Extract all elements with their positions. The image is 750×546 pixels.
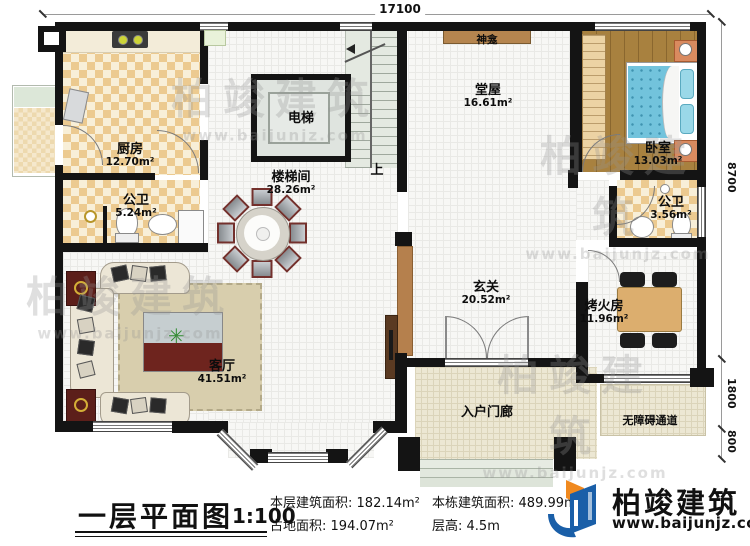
wall: [528, 358, 576, 367]
room-name: 厨房: [106, 143, 155, 157]
porch-column: [554, 437, 576, 471]
room-label-kitchen: 厨房 12.70m²: [106, 143, 155, 169]
plant: ✳: [168, 326, 185, 346]
cushion: [149, 265, 166, 282]
tv-wall-cap: [395, 232, 412, 246]
stove-burner: [118, 35, 128, 45]
wall: [228, 22, 340, 31]
room-label-ramp: 无障碍通道: [623, 410, 678, 428]
pillow: [680, 104, 694, 134]
dining-chair: [217, 223, 235, 244]
porch-step: [420, 477, 553, 487]
room-label-shrine: 神龛: [477, 29, 498, 47]
table-lamp: [679, 43, 692, 56]
dimension-line-right: [721, 22, 722, 460]
title-underline: [75, 536, 267, 537]
stat-value: 4.5m: [467, 519, 500, 534]
dimension-top-value: 17100: [375, 2, 425, 16]
bed-sheet: [662, 66, 679, 138]
brand-url: www.baijunjz.com: [612, 514, 750, 532]
bath2-corridor-floor: [576, 180, 609, 240]
dim-text: 800: [725, 430, 738, 453]
chair: [620, 333, 645, 348]
shower-head: [660, 184, 670, 194]
entry-door-left-leaf: [445, 316, 447, 358]
room-name: 公卫: [115, 194, 156, 208]
dining-chair: [289, 223, 307, 244]
stat-label: 本层建筑面积:: [270, 496, 352, 511]
tv-wall: [397, 246, 413, 356]
wall: [395, 353, 407, 433]
floor-lamp: [84, 210, 97, 223]
room-label-kaohuofang: 烤火房 11.96m²: [580, 300, 629, 326]
chimney-flue: [44, 32, 59, 45]
room-label-bath1: 公卫 5.24m²: [115, 194, 156, 220]
washing-machine: [178, 210, 204, 244]
room-area: 11.96m²: [580, 314, 629, 326]
cushion: [77, 339, 95, 356]
stat-storey-height: 层高: 4.5m: [432, 515, 500, 534]
wall: [63, 173, 155, 180]
cabinet-emblem: [74, 281, 88, 295]
room-area: 12.70m²: [106, 157, 155, 169]
terrace-top: [14, 87, 56, 107]
bay-window-center: [268, 452, 328, 463]
wall: [568, 170, 578, 188]
pillow: [680, 69, 694, 99]
room-area: 3.56m²: [650, 210, 691, 222]
title-text: 一层平面图: [78, 500, 233, 533]
bath1-partition: [103, 206, 107, 244]
dimension-right-8700: 8700: [725, 162, 738, 193]
cushion: [130, 397, 148, 414]
room-area: 5.24m²: [115, 208, 156, 220]
wall: [55, 421, 93, 432]
stat-footprint: 占地面积: 194.07m²: [270, 515, 394, 534]
room-name: 神龛: [477, 34, 498, 46]
stat-value: 182.14m²: [357, 496, 420, 511]
wall: [697, 237, 706, 383]
wall: [609, 238, 706, 247]
stove-burner: [133, 35, 143, 45]
stair-arrow: [346, 44, 355, 54]
wall: [570, 22, 582, 172]
room-name: 楼梯间: [267, 171, 316, 185]
wall: [55, 165, 63, 422]
cabinet-emblem: [74, 398, 88, 412]
cushion: [130, 265, 148, 282]
room-name: 公卫: [650, 196, 691, 210]
kitchen-vent: [204, 30, 226, 46]
room-label-xuanguan: 玄关 20.52m²: [462, 281, 511, 307]
brand-url-text: www.baijunjz.com: [612, 514, 750, 532]
stat-label: 占地面积:: [270, 519, 326, 534]
window: [340, 22, 372, 31]
room-area: 20.52m²: [462, 295, 511, 307]
room-name: 烤火房: [580, 300, 629, 314]
stat-label: 本栋建筑面积:: [432, 496, 514, 511]
window: [93, 421, 172, 432]
window: [595, 22, 690, 31]
room-label-elevator: 电梯: [288, 112, 314, 126]
chair: [652, 272, 677, 287]
drawing-title: 一层平面图: [78, 495, 233, 535]
cushion: [149, 397, 166, 413]
dimension-tick: [718, 455, 726, 463]
floor-plan: ✳ 柏竣建筑 www.baijunjz.com 柏竣建筑 www.baijunj…: [0, 0, 750, 546]
room-name: 无障碍通道: [623, 414, 678, 427]
room-name: 电梯: [288, 112, 314, 126]
dimension-right-1800: 1800: [725, 378, 738, 409]
room-label-bedroom: 卧室 13.03m²: [634, 142, 683, 168]
room-label-porch: 入户门廊: [461, 406, 513, 420]
toilet-tank: [115, 233, 139, 243]
porch-column: [398, 437, 420, 471]
room-area: 28.26m²: [267, 185, 316, 197]
stat-floor-area: 本层建筑面积: 182.14m²: [270, 492, 420, 511]
stat-value: 194.07m²: [331, 519, 394, 534]
dimension-tick: [718, 18, 726, 26]
cushion: [77, 317, 95, 335]
room-name: 堂屋: [464, 84, 513, 98]
dimension-tick: [718, 355, 726, 363]
stair-up-text: 上: [370, 164, 383, 178]
stair-up-label: 上: [370, 164, 383, 178]
wall: [697, 22, 706, 187]
wall: [397, 22, 407, 192]
room-label-bath2: 公卫 3.56m²: [650, 196, 691, 222]
room-label-tangwu: 堂屋 16.61m²: [464, 84, 513, 110]
cushion: [111, 397, 129, 415]
round-table-center: [256, 227, 270, 241]
dining-chair: [252, 260, 273, 278]
window: [604, 374, 690, 383]
brand-logo-icon: [540, 476, 610, 542]
room-label-stairhall: 楼梯间 28.26m²: [267, 171, 316, 197]
chair: [652, 333, 677, 348]
room-name: 卧室: [634, 142, 683, 156]
room-area: 41.51m²: [198, 374, 247, 386]
room-area: 13.03m²: [634, 156, 683, 168]
wall: [200, 140, 208, 180]
wall: [576, 374, 604, 383]
wall: [55, 243, 208, 252]
room-name: 入户门廊: [461, 406, 513, 420]
wall: [55, 22, 200, 31]
room-name: 玄关: [462, 281, 511, 295]
room-name: 客厅: [198, 360, 247, 374]
wall: [620, 170, 698, 180]
window: [697, 187, 706, 237]
chair: [620, 272, 645, 287]
wall: [576, 282, 588, 382]
dim-text: 1800: [725, 378, 738, 409]
dimension-right-800: 800: [725, 430, 738, 453]
tv-screen: [389, 330, 393, 360]
room-label-living: 客厅 41.51m²: [198, 360, 247, 386]
tangwu-xuanguan-floor: [408, 30, 576, 359]
room-area: 16.61m²: [464, 98, 513, 110]
entry-door-right-leaf: [527, 316, 529, 358]
dim-text: 17100: [379, 2, 421, 16]
stat-label: 层高:: [432, 519, 462, 534]
terrace-paving: [14, 108, 56, 173]
bay-post: [326, 449, 348, 463]
dim-text: 8700: [725, 162, 738, 193]
title-underline: [75, 531, 267, 533]
entry-threshold: [445, 358, 528, 367]
door-gap: [55, 125, 63, 165]
